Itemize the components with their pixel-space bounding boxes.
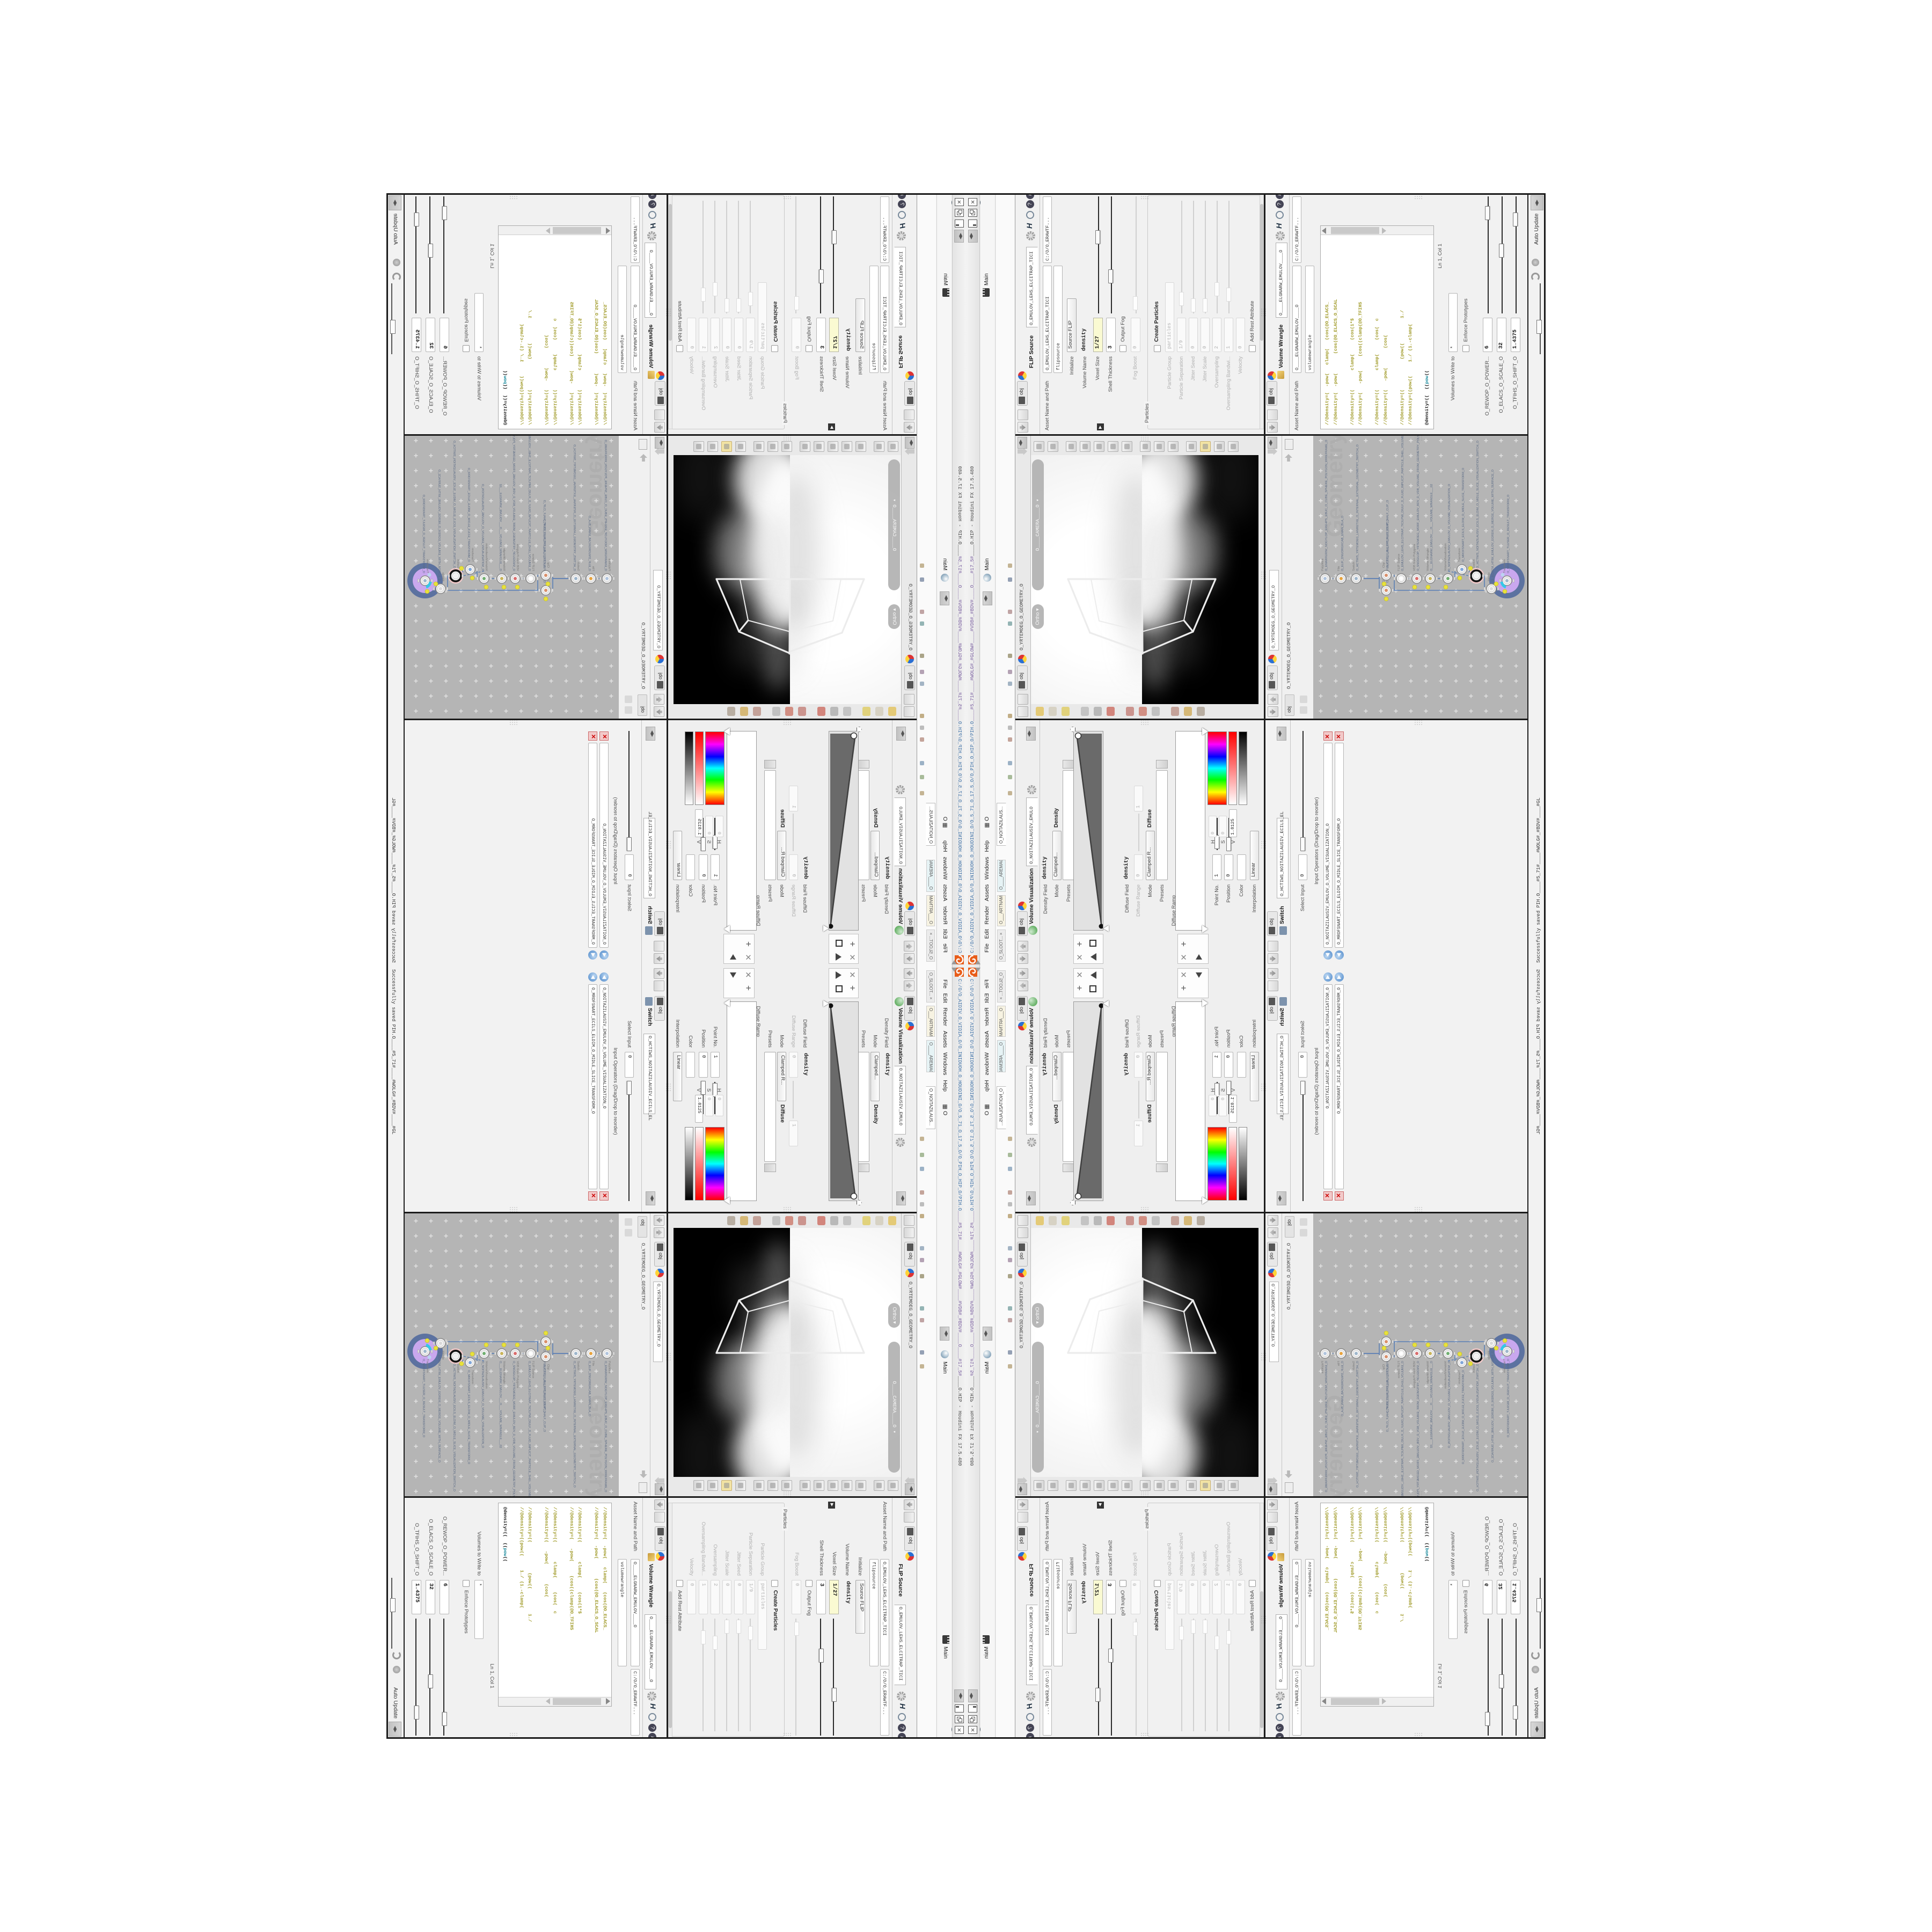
svg-text:PolyWire: PolyWire (1321, 1361, 1324, 1373)
svg-text:O_ELIF_DNUORGKCAB_EMAN_BLA_O: O_ELIF_DNUORGKCAB_EMAN_BLA_O (1341, 1361, 1344, 1417)
svg-text:O_HCTIWS_NOITAZILAUSIV_ECILS_E: O_HCTIWS_NOITAZILAUSIV_ECILS_ELDIM_O_MID… (1476, 440, 1480, 568)
svg-text:Transform: Transform (426, 1359, 429, 1373)
svg-text:FLIP Source: FLIP Source (1397, 554, 1401, 571)
svg-text:Switch: Switch (1352, 562, 1356, 571)
svg-text:O_MROFSNART_TLUSER_O_RESULT_TR: O_MROFSNART_TLUSER_O_RESULT_TRANSFORM_O (1507, 494, 1510, 573)
svg-text:O_EMULOV_LEHS_ELCITRAP_TICILPM: O_EMULOV_LEHS_ELCITRAP_TICILPMI_DIULF_D_… (1401, 435, 1404, 571)
svg-text:File: File (591, 566, 595, 571)
svg-text:O_ELIF_DNUORGKCAB_EMAN_BLA_O: O_ELIF_DNUORGKCAB_EMAN_BLA_O (588, 515, 591, 571)
svg-text:FLIP Source: FLIP Source (531, 554, 535, 571)
svg-text:VolumeVisualization: VolumeVisualization (1444, 543, 1447, 571)
svg-text:Transform: Transform (471, 548, 474, 562)
svg-text:Switch: Switch (576, 1361, 580, 1370)
svg-text:Transform: Transform (1503, 1359, 1506, 1373)
svg-text:O_PILC_FLAH_THGIR_O_RIGHT_HALF: O_PILC_FLAH_THGIR_O_RIGHT_HALF_CLIP_O (1386, 1364, 1389, 1432)
svg-text:O_HCTIWS_NOITAZILAUSIV_ECILS_E: O_HCTIWS_NOITAZILAUSIV_ECILS_ELDIM_O_MID… (1476, 1364, 1480, 1492)
svg-text:O_MROFSNART_TLUSER_O_RESULT_TR: O_MROFSNART_TLUSER_O_RESULT_TRANSFORM_O (1507, 1359, 1510, 1438)
svg-text:File: File (1337, 566, 1341, 571)
svg-text:VDB from Polygons: VDB from Polygons (1413, 1361, 1416, 1388)
svg-text:O_NOITAZILAUSIV_EMULOV_O_VOLUM: O_NOITAZILAUSIV_EMULOV_O_VOLUME_VISUALIZ… (1448, 484, 1451, 571)
svg-text:Merge: Merge (441, 1351, 444, 1359)
svg-text:VolumeVisualization: VolumeVisualization (1444, 1361, 1447, 1389)
svg-text:FLIP Source: FLIP Source (1397, 1361, 1401, 1378)
svg-text:Volume Wrangle: Volume Wrangle (502, 548, 506, 571)
svg-text:File: File (591, 1361, 595, 1366)
svg-text:Transform: Transform (426, 559, 429, 573)
svg-text:VDB from Polygons: VDB from Polygons (1413, 544, 1416, 571)
svg-text:O_EMARFERIW_NOGYLOP_EREHPS_EBU: O_EMARFERIW_NOGYLOP_EREHPS_EBUC_O_CUBE_S… (604, 1361, 607, 1492)
svg-text:O_ELIF_DNUORGKCAB_EMAN_BLA_O: O_ELIF_DNUORGKCAB_EMAN_BLA_O (588, 1361, 591, 1417)
svg-text:O_PILC_FLAH_THGIR_O_RIGHT_HALF: O_PILC_FLAH_THGIR_O_RIGHT_HALF_CLIP_O (1386, 500, 1389, 568)
svg-text:Switch: Switch (456, 1364, 459, 1373)
svg-text:Merge: Merge (1488, 1351, 1491, 1359)
svg-text:Transform: Transform (471, 1370, 474, 1384)
svg-text:O_EGREM_HTIW_EMULOV_EGREM_O_ME: O_EGREM_HTIW_EMULOV_EGREM_O_MERGE_VOLUME… (437, 1351, 441, 1463)
svg-text:Merge: Merge (1488, 573, 1491, 581)
svg-text:Clip: Clip (1382, 562, 1386, 568)
svg-text:Clip: Clip (546, 1364, 550, 1370)
svg-text:O___ELGNARW_EMULOV___O___VOLUM: O___ELGNARW_EMULOV___O___VOLUME_WRANGLE_… (499, 1361, 502, 1448)
svg-text:O_PILC_FLAH_THGIR_O_RIGHT_HALF: O_PILC_FLAH_THGIR_O_RIGHT_HALF_CLIP_O (543, 500, 546, 568)
svg-text:File: File (1337, 1361, 1341, 1366)
svg-text:O_EMULOV_LEHS_ELCITRAP_TICILPM: O_EMULOV_LEHS_ELCITRAP_TICILPMI_DIULF_D_… (1401, 1361, 1404, 1497)
svg-text:O_SNOGILOP_YRTEMOEG_MORF_EMULO: O_SNOGILOP_YRTEMOEG_MORF_EMULOV_BDV_D_VD… (512, 1361, 515, 1497)
svg-text:O_NOITAZILAUSIV_EMULOV_O_VOLUM: O_NOITAZILAUSIV_EMULOV_O_VOLUME_VISUALIZ… (481, 484, 484, 571)
svg-text:O_NOITAZILAUSIV_EMULOV_O_VOLUM: O_NOITAZILAUSIV_EMULOV_O_VOLUME_VISUALIZ… (1448, 1361, 1451, 1448)
svg-text:Switch: Switch (1352, 1361, 1356, 1370)
svg-text:O_EMULOV_LEHS_ELCITRAP_TICILPM: O_EMULOV_LEHS_ELCITRAP_TICILPMI_DIULF_D_… (528, 435, 531, 571)
svg-text:Volume Wrangle: Volume Wrangle (1426, 1361, 1430, 1384)
svg-text:VDB from Polygons: VDB from Polygons (516, 1361, 519, 1388)
svg-text:Transform: Transform (1503, 559, 1506, 573)
svg-text:O_MROFSNART_ECILS_ELDIM_O_MIDL: O_MROFSNART_ECILS_ELDIM_O_MIDLE_SLICE_TR… (467, 1370, 470, 1465)
svg-text:O_NOITAZILAUSIV_EMULOV_O_VOLUM: O_NOITAZILAUSIV_EMULOV_O_VOLUME_VISUALIZ… (481, 1361, 484, 1448)
svg-text:O_EMARFERIW_NOGYLOP_EREHPS_EBU: O_EMARFERIW_NOGYLOP_EREHPS_EBUC_O_CUBE_S… (604, 440, 607, 571)
svg-text:O___ELGNARW_EMULOV___O___VOLUM: O___ELGNARW_EMULOV___O___VOLUME_WRANGLE_… (1430, 484, 1433, 571)
svg-text:O_SNOGILOP_YRTEMOEG_MORF_EMULO: O_SNOGILOP_YRTEMOEG_MORF_EMULOV_BDV_D_VD… (512, 435, 515, 571)
svg-text:O_EGREM_HTIW_EMULOV_EGREM_O_ME: O_EGREM_HTIW_EMULOV_EGREM_O_MERGE_VOLUME… (1491, 469, 1495, 581)
svg-text:O_SNOGILOP_YRTEMOEG_MORF_EMULO: O_SNOGILOP_YRTEMOEG_MORF_EMULOV_BDV_D_VD… (1417, 1361, 1420, 1497)
svg-text:O_SNOGILOP_YRTEMOEG_MORF_EMULO: O_SNOGILOP_YRTEMOEG_MORF_EMULOV_BDV_D_VD… (1417, 435, 1420, 571)
svg-text:Transform: Transform (1458, 1370, 1461, 1384)
svg-text:VolumeVisualization: VolumeVisualization (485, 543, 488, 571)
svg-text:O___ELGNARW_EMULOV___O___VOLUM: O___ELGNARW_EMULOV___O___VOLUME_WRANGLE_… (1430, 1361, 1433, 1448)
svg-text:O_EGREM_HTIW_EMULOV_EGREM_O_ME: O_EGREM_HTIW_EMULOV_EGREM_O_MERGE_VOLUME… (437, 469, 441, 581)
svg-text:O_PILC_FLAH_THGIR_O_RIGHT_HALF: O_PILC_FLAH_THGIR_O_RIGHT_HALF_CLIP_O (543, 1364, 546, 1432)
svg-text:Switch: Switch (456, 559, 459, 568)
svg-text:O_HCTIWS_NOITAZILAUSIV_ECILS_E: O_HCTIWS_NOITAZILAUSIV_ECILS_ELDIM_O_MID… (452, 1364, 456, 1492)
svg-text:O_EGREM_HTIW_EMULOV_EGREM_O_ME: O_EGREM_HTIW_EMULOV_EGREM_O_MERGE_VOLUME… (1491, 1351, 1495, 1463)
svg-text:PolyWire: PolyWire (1321, 559, 1324, 571)
svg-text:O___ELGNARW_EMULOV___O___VOLUM: O___ELGNARW_EMULOV___O___VOLUME_WRANGLE_… (499, 484, 502, 571)
svg-text:Transform: Transform (1458, 548, 1461, 562)
svg-text:Clip: Clip (546, 562, 550, 568)
svg-text:O_MROFSNART_ECILS_ELDIM_O_MIDL: O_MROFSNART_ECILS_ELDIM_O_MIDLE_SLICE_TR… (467, 467, 470, 562)
svg-text:Switch: Switch (576, 562, 580, 571)
svg-text:Switch: Switch (1473, 559, 1476, 568)
svg-text:O_HCTIWS_YRTEMOEG_LANRETXE_O_I: O_HCTIWS_YRTEMOEG_LANRETXE_O_INTERNAL_EX… (1356, 444, 1359, 571)
svg-text:VolumeVisualization: VolumeVisualization (485, 1361, 488, 1389)
svg-text:O_ELIF_DNUORGKCAB_EMAN_BLA_O: O_ELIF_DNUORGKCAB_EMAN_BLA_O (1341, 515, 1344, 571)
svg-text:O_HCTIWS_YRTEMOEG_LANRETXE_O_I: O_HCTIWS_YRTEMOEG_LANRETXE_O_INTERNAL_EX… (573, 1361, 576, 1488)
svg-text:O_MROFSNART_TLUSER_O_RESULT_TR: O_MROFSNART_TLUSER_O_RESULT_TRANSFORM_O (422, 494, 425, 573)
svg-text:O_HCTIWS_NOITAZILAUSIV_ECILS_E: O_HCTIWS_NOITAZILAUSIV_ECILS_ELDIM_O_MID… (452, 440, 456, 568)
svg-text:O_EMARFERIW_NOGYLOP_EREHPS_EBU: O_EMARFERIW_NOGYLOP_EREHPS_EBUC_O_CUBE_S… (1325, 440, 1328, 571)
svg-text:FLIP Source: FLIP Source (531, 1361, 535, 1378)
svg-text:VDB from Polygons: VDB from Polygons (516, 544, 519, 571)
svg-text:O_EMARFERIW_NOGYLOP_EREHPS_EBU: O_EMARFERIW_NOGYLOP_EREHPS_EBUC_O_CUBE_S… (1325, 1361, 1328, 1492)
svg-text:Switch: Switch (1473, 1364, 1476, 1373)
svg-text:Volume Wrangle: Volume Wrangle (502, 1361, 506, 1384)
svg-text:O_EMULOV_LEHS_ELCITRAP_TICILPM: O_EMULOV_LEHS_ELCITRAP_TICILPMI_DIULF_D_… (528, 1361, 531, 1497)
svg-text:PolyWire: PolyWire (608, 1361, 611, 1373)
svg-text:O_MROFSNART_TLUSER_O_RESULT_TR: O_MROFSNART_TLUSER_O_RESULT_TRANSFORM_O (422, 1359, 425, 1438)
svg-text:Volume Wrangle: Volume Wrangle (1426, 548, 1430, 571)
svg-text:Merge: Merge (441, 573, 444, 581)
svg-text:Clip: Clip (1382, 1364, 1386, 1370)
svg-text:O_MROFSNART_ECILS_ELDIM_O_MIDL: O_MROFSNART_ECILS_ELDIM_O_MIDLE_SLICE_TR… (1462, 1370, 1465, 1465)
svg-text:PolyWire: PolyWire (608, 559, 611, 571)
svg-text:O_MROFSNART_ECILS_ELDIM_O_MIDL: O_MROFSNART_ECILS_ELDIM_O_MIDLE_SLICE_TR… (1462, 467, 1465, 562)
svg-text:O_HCTIWS_YRTEMOEG_LANRETXE_O_I: O_HCTIWS_YRTEMOEG_LANRETXE_O_INTERNAL_EX… (573, 444, 576, 571)
svg-text:O_HCTIWS_YRTEMOEG_LANRETXE_O_I: O_HCTIWS_YRTEMOEG_LANRETXE_O_INTERNAL_EX… (1356, 1361, 1359, 1488)
